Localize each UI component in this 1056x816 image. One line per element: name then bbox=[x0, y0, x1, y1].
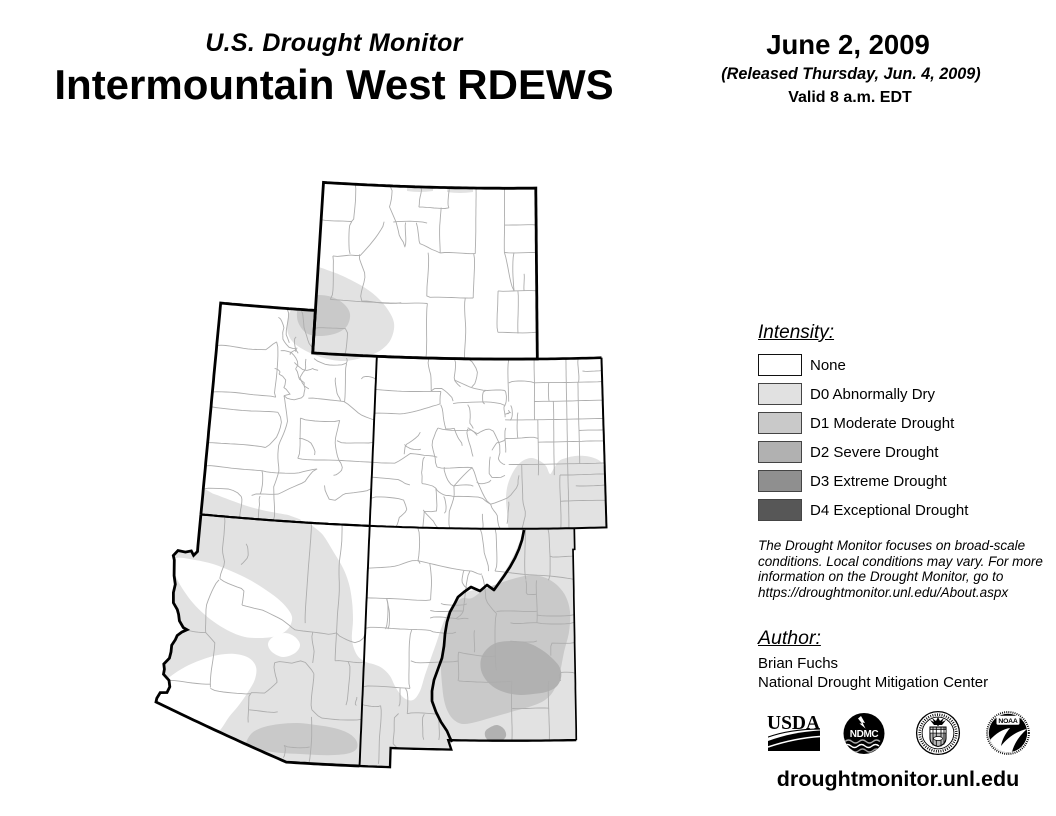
svg-text:NDMC: NDMC bbox=[850, 729, 879, 740]
svg-text:NOAA: NOAA bbox=[998, 718, 1018, 725]
